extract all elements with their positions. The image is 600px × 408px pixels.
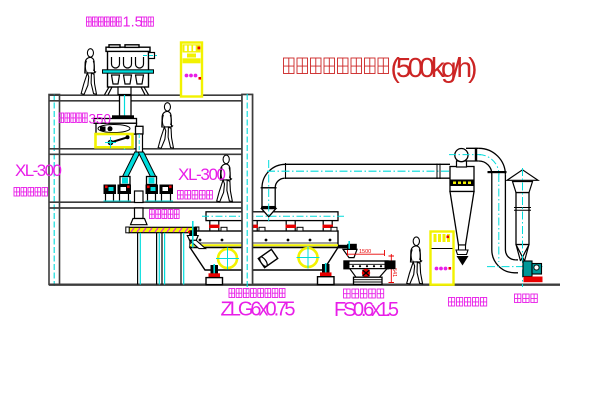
- svg-text:350: 350: [89, 112, 112, 127]
- svg-text:XL-300: XL-300: [15, 161, 62, 180]
- svg-text:1500: 1500: [359, 249, 371, 255]
- svg-text:FS0.6x1.5: FS0.6x1.5: [334, 299, 399, 321]
- svg-text:XL-300: XL-300: [178, 165, 226, 184]
- svg-text:541: 541: [391, 268, 397, 277]
- svg-text:1.5: 1.5: [123, 15, 143, 31]
- svg-text:(500kg/h): (500kg/h): [391, 52, 478, 83]
- svg-text:ZLG6x0.75: ZLG6x0.75: [221, 299, 296, 321]
